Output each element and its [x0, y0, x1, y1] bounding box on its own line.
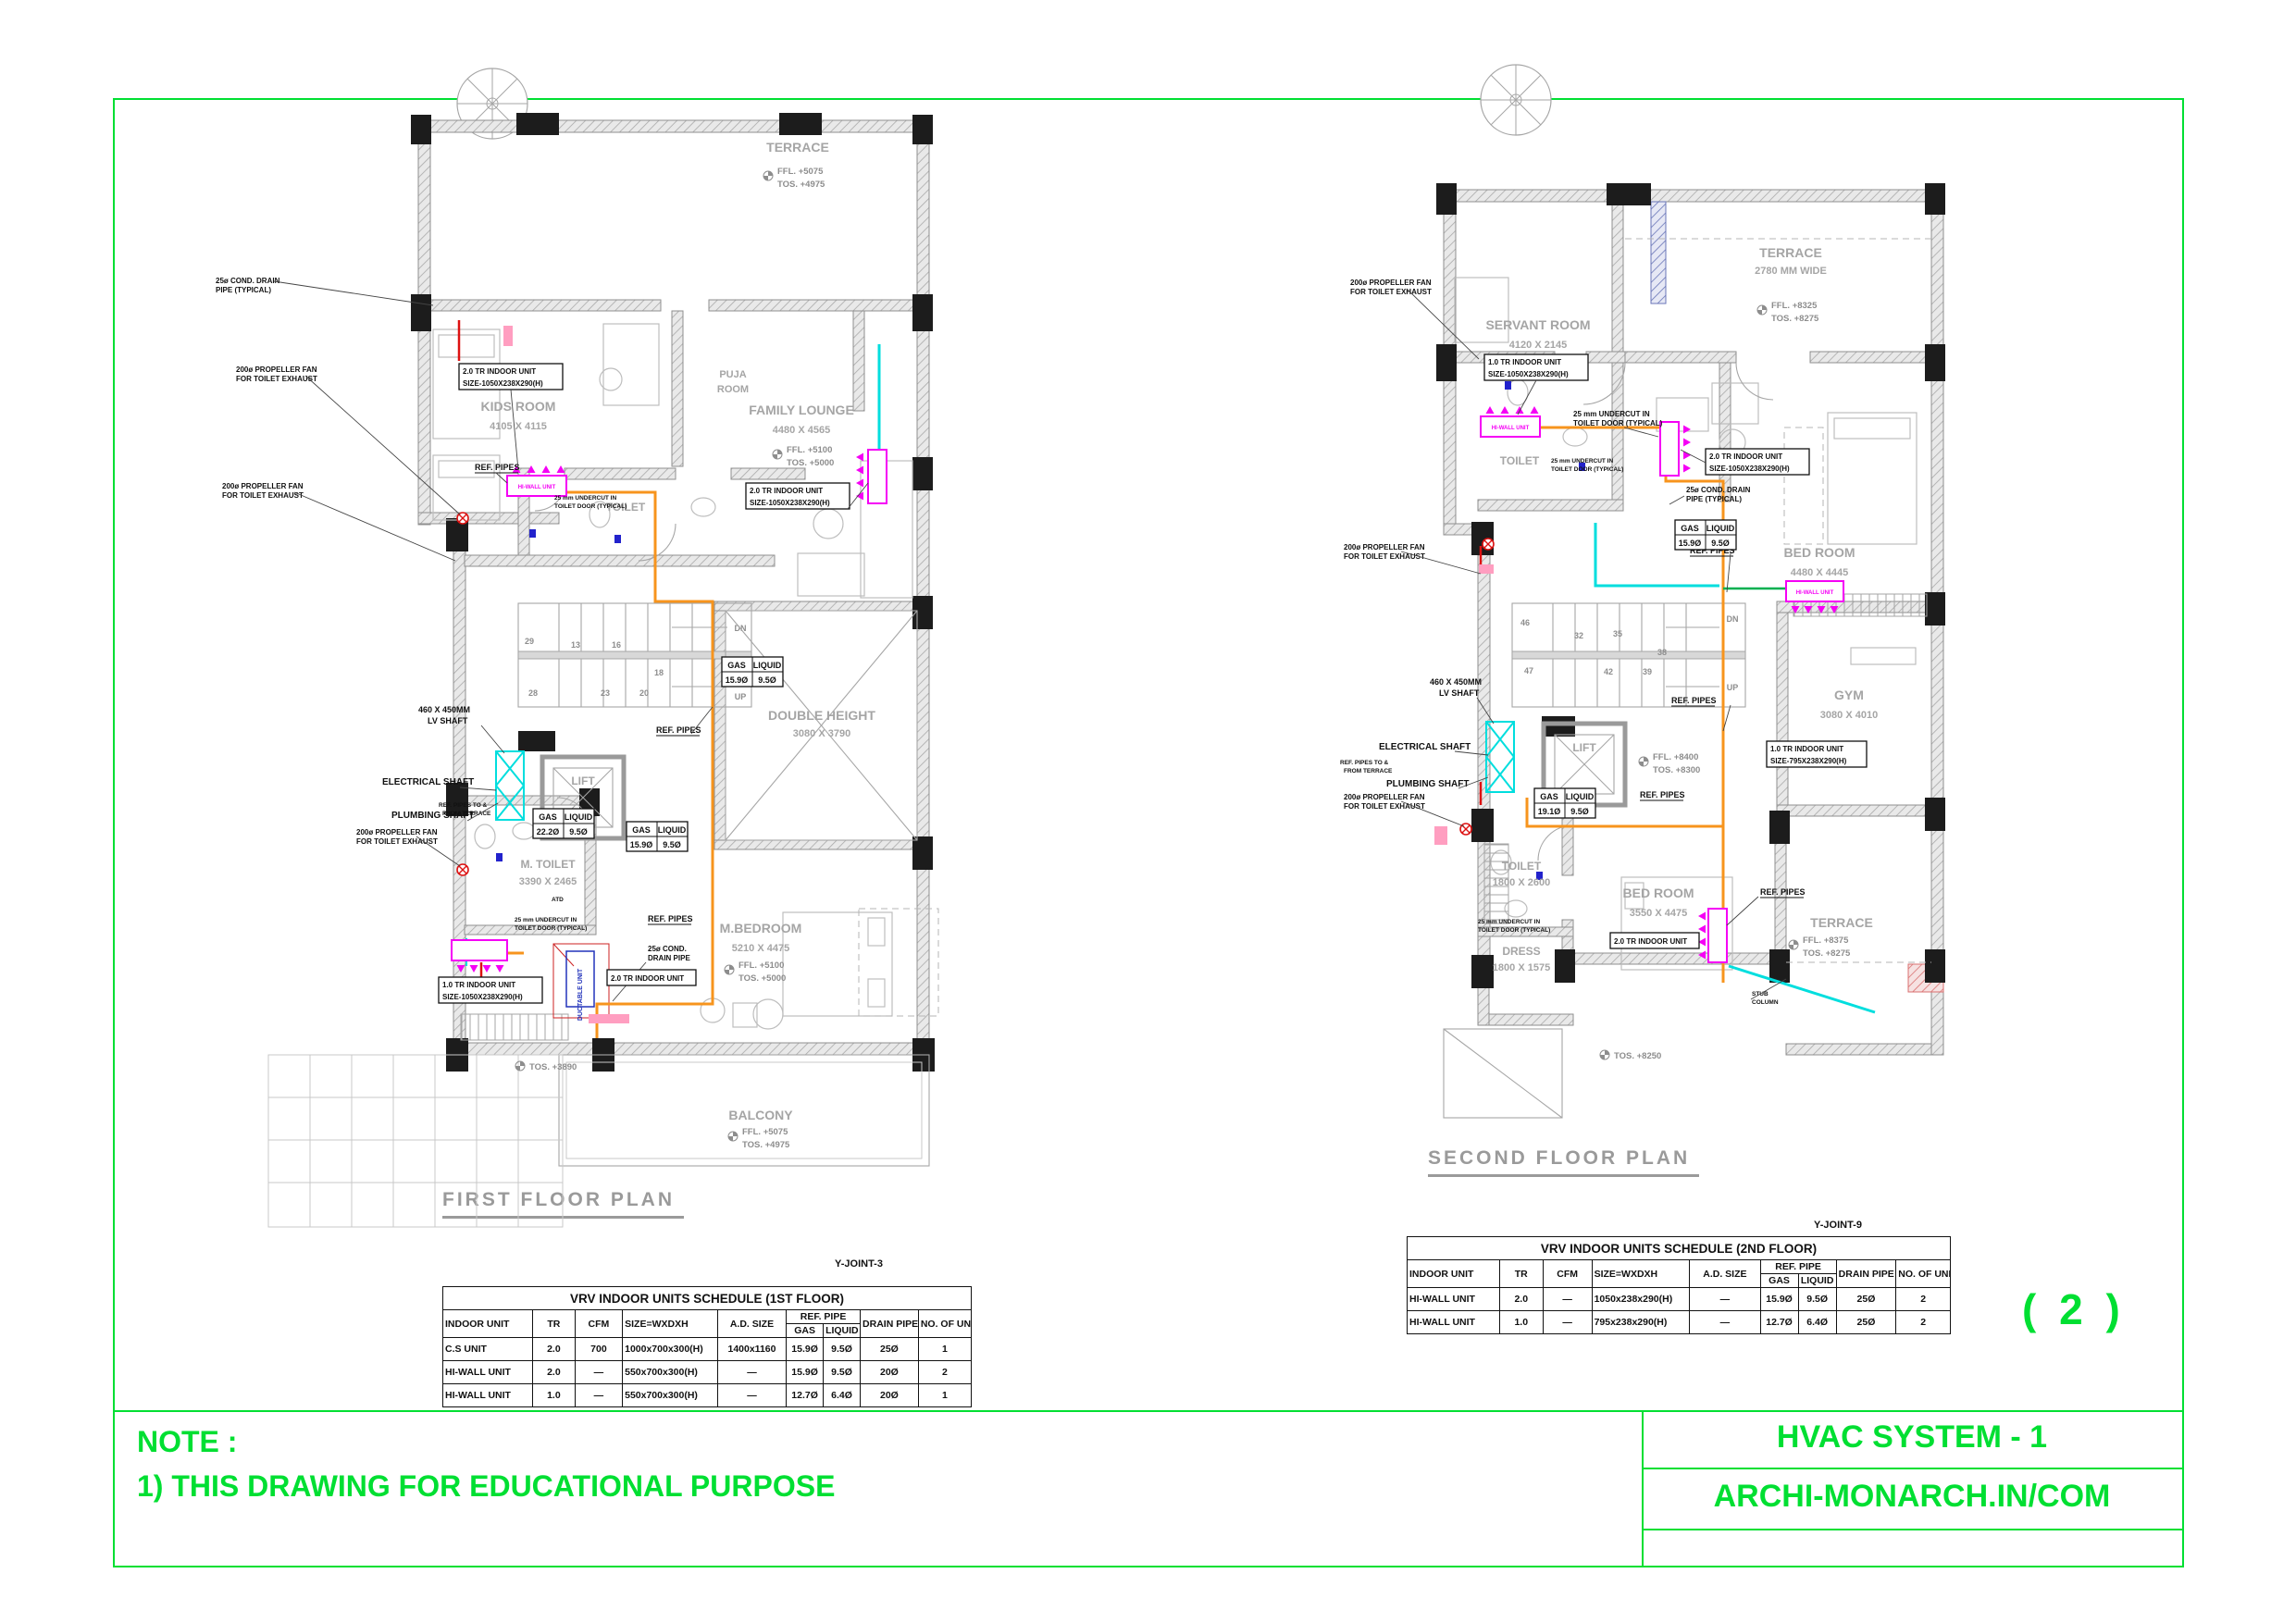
col-ad-size: A.D. SIZE	[1690, 1260, 1760, 1288]
svg-text:23: 23	[601, 688, 610, 698]
sf-stair-dn: DN	[1727, 614, 1739, 624]
svg-text:ROOM: ROOM	[717, 384, 749, 395]
svg-text:25 mm UNDERCUT IN: 25 mm UNDERCUT IN	[1573, 410, 1650, 418]
ff-hiwall-unit-mtoilet	[452, 940, 507, 973]
table-row: HI-WALL UNIT1.0 —550x700x300(H) —12.7Ø 6…	[443, 1384, 972, 1407]
svg-text:TOILET: TOILET	[1500, 454, 1540, 467]
svg-text:DUCTABLE UNIT: DUCTABLE UNIT	[577, 968, 584, 1021]
table-row: HI-WALL UNIT1.0 —795x238x290(H) —12.7Ø 6…	[1408, 1311, 1951, 1334]
svg-text:20: 20	[639, 688, 649, 698]
svg-text:TOILET DOOR (TYPICAL): TOILET DOOR (TYPICAL)	[515, 925, 587, 932]
svg-text:LIQUID: LIQUID	[658, 825, 687, 835]
svg-text:25 mm UNDERCUT IN: 25 mm UNDERCUT IN	[554, 495, 616, 502]
col-no-of-unit: NO. OF UNIT	[1896, 1260, 1951, 1288]
svg-text:LIQUID: LIQUID	[753, 661, 782, 670]
toilet-exhaust-fan-icon	[457, 513, 468, 524]
svg-text:35: 35	[1613, 629, 1622, 638]
svg-text:2.0 TR INDOOR UNIT: 2.0 TR INDOOR UNIT	[1614, 937, 1687, 946]
svg-text:GYM: GYM	[1834, 688, 1864, 702]
svg-text:HI-WALL UNIT: HI-WALL UNIT	[1492, 426, 1530, 431]
svg-text:200ø PROPELLER FAN: 200ø PROPELLER FAN	[222, 482, 304, 490]
plans-canvas: 29 13 16 18 28 23 20 DN UP DOUBLE HEIGHT…	[0, 0, 2296, 1623]
svg-text:9.5Ø: 9.5Ø	[569, 827, 588, 836]
svg-text:BALCONY: BALCONY	[728, 1108, 793, 1122]
svg-text:22.2Ø: 22.2Ø	[537, 827, 560, 836]
svg-text:1.0 TR INDOOR UNIT: 1.0 TR INDOOR UNIT	[442, 981, 515, 989]
svg-text:COLUMN: COLUMN	[1752, 999, 1779, 1006]
svg-text:DOUBLE HEIGHT: DOUBLE HEIGHT	[768, 708, 875, 723]
drawing-sheet: NOTE : 1) THIS DRAWING FOR EDUCATIONAL P…	[0, 0, 2296, 1623]
svg-text:TOS. +5000: TOS. +5000	[787, 458, 834, 468]
svg-text:FOR TOILET EXHAUST: FOR TOILET EXHAUST	[1344, 552, 1425, 561]
svg-text:4480 X 4565: 4480 X 4565	[773, 425, 830, 436]
svg-text:REF. PIPES: REF. PIPES	[1640, 790, 1685, 799]
sf-hiwall-unit-bedroom1	[1660, 422, 1691, 476]
svg-text:DRESS: DRESS	[1502, 945, 1540, 958]
svg-text:1800 X 1575: 1800 X 1575	[1493, 962, 1550, 973]
col-gas: GAS	[787, 1324, 824, 1338]
sf-steel-pier	[1651, 202, 1666, 304]
svg-text:TOILET DOOR (TYPICAL): TOILET DOOR (TYPICAL)	[554, 503, 627, 510]
svg-text:TOS. +8250: TOS. +8250	[1614, 1051, 1661, 1061]
svg-text:BED ROOM: BED ROOM	[1784, 545, 1855, 560]
svg-text:FAMILY LOUNGE: FAMILY LOUNGE	[749, 403, 854, 417]
svg-text:25ø COND.: 25ø COND.	[648, 945, 687, 953]
svg-text:3080 X 3790: 3080 X 3790	[793, 728, 850, 739]
svg-text:FOR TOILET EXHAUST: FOR TOILET EXHAUST	[222, 491, 304, 500]
svg-text:GAS: GAS	[539, 812, 557, 822]
col-tr: TR	[1499, 1260, 1543, 1288]
ff-ductable-unit: DUCTABLE UNIT	[553, 944, 609, 1021]
svg-text:TOS. +8275: TOS. +8275	[1803, 948, 1851, 959]
svg-text:TERRACE: TERRACE	[1810, 915, 1873, 930]
svg-text:1.0 TR INDOOR UNIT: 1.0 TR INDOOR UNIT	[1488, 358, 1561, 366]
svg-text:42: 42	[1604, 667, 1613, 676]
svg-text:200ø PROPELLER FAN: 200ø PROPELLER FAN	[1344, 543, 1425, 551]
svg-text:PLUMBING SHAFT: PLUMBING SHAFT	[1386, 779, 1469, 789]
svg-text:TOS. +4975: TOS. +4975	[742, 1140, 790, 1150]
svg-text:LIQUID: LIQUID	[1566, 792, 1595, 801]
svg-text:REF. PIPES: REF. PIPES	[1760, 887, 1806, 897]
svg-text:DRAIN PIPE: DRAIN PIPE	[648, 954, 690, 962]
svg-text:TOILET: TOILET	[1502, 860, 1542, 873]
svg-text:REF. PIPES: REF. PIPES	[648, 914, 693, 923]
svg-text:2.0 TR INDOOR UNIT: 2.0 TR INDOOR UNIT	[611, 974, 684, 983]
svg-text:4120 X 2145: 4120 X 2145	[1509, 340, 1567, 351]
svg-text:460 X 450MM: 460 X 450MM	[418, 705, 470, 714]
sf-gas-liquid-table-1: GASLIQUID 15.9Ø9.5Ø	[1675, 520, 1736, 550]
svg-text:SIZE-795X238X290(H): SIZE-795X238X290(H)	[1770, 757, 1847, 765]
svg-text:TOS. +8275: TOS. +8275	[1771, 314, 1819, 324]
svg-text:TERRACE: TERRACE	[1759, 245, 1822, 260]
svg-text:SERVANT ROOM: SERVANT ROOM	[1485, 317, 1590, 332]
svg-text:3550 X 4475: 3550 X 4475	[1630, 908, 1687, 919]
svg-text:25 mm UNDERCUT IN: 25 mm UNDERCUT IN	[1551, 458, 1613, 465]
svg-text:25ø COND. DRAIN: 25ø COND. DRAIN	[216, 277, 280, 285]
svg-text:M. TOILET: M. TOILET	[520, 858, 576, 871]
sf-hiwall-unit-servant: HI-WALL UNIT	[1481, 406, 1540, 437]
ff-gas-liquid-table-3: GASLIQUID 15.9Ø9.5Ø	[627, 822, 688, 851]
svg-text:47: 47	[1524, 666, 1533, 675]
col-ad-size: A.D. SIZE	[717, 1310, 786, 1338]
svg-text:9.5Ø: 9.5Ø	[1711, 539, 1730, 548]
sf-stairs: 46 32 35 38 47 42 39 DN UP	[1512, 603, 1745, 707]
svg-text:29: 29	[525, 637, 534, 646]
svg-text:M.BEDROOM: M.BEDROOM	[720, 921, 802, 935]
svg-text:9.5Ø: 9.5Ø	[1570, 807, 1589, 816]
col-indoor-unit: INDOOR UNIT	[443, 1310, 533, 1338]
col-cfm: CFM	[575, 1310, 622, 1338]
svg-text:19.1Ø: 19.1Ø	[1538, 807, 1561, 816]
svg-text:3080 X 4010: 3080 X 4010	[1820, 710, 1878, 721]
svg-text:LIQUID: LIQUID	[1706, 524, 1735, 533]
sf-stair-up: UP	[1727, 683, 1739, 692]
svg-text:SIZE-1050X238X290(H): SIZE-1050X238X290(H)	[1488, 370, 1569, 378]
svg-text:2.0 TR INDOOR UNIT: 2.0 TR INDOOR UNIT	[463, 367, 536, 376]
svg-text:4105 X 4115: 4105 X 4115	[490, 421, 547, 432]
svg-text:REF. PIPES: REF. PIPES	[475, 463, 520, 472]
svg-text:ATD: ATD	[552, 897, 564, 903]
svg-text:9.5Ø: 9.5Ø	[663, 840, 681, 849]
col-size: SIZE=WXDXH	[623, 1310, 718, 1338]
svg-text:LV SHAFT: LV SHAFT	[1439, 688, 1480, 698]
svg-text:FFL. +8400: FFL. +8400	[1653, 752, 1698, 762]
svg-text:1800 X 2600: 1800 X 2600	[1493, 877, 1550, 888]
col-liquid: LIQUID	[1798, 1274, 1836, 1288]
svg-text:38: 38	[1657, 648, 1667, 657]
col-size: SIZE=WXDXH	[1592, 1260, 1690, 1288]
svg-text:FOR TOILET EXHAUST: FOR TOILET EXHAUST	[356, 837, 438, 846]
svg-text:TERRACE: TERRACE	[766, 140, 829, 155]
svg-text:FFL. +5075: FFL. +5075	[777, 167, 824, 177]
schedule-title: VRV INDOOR UNITS SCHEDULE (1ST FLOOR)	[443, 1287, 972, 1310]
svg-text:SIZE-1050X238X290(H): SIZE-1050X238X290(H)	[750, 499, 830, 507]
svg-text:GAS: GAS	[1681, 524, 1699, 533]
col-tr: TR	[533, 1310, 576, 1338]
svg-text:LIFT: LIFT	[571, 774, 595, 787]
svg-text:46: 46	[1520, 618, 1530, 627]
svg-text:GAS: GAS	[1540, 792, 1558, 801]
sf-hiwall-unit-bedroom2	[1698, 909, 1727, 962]
col-ref-pipe: REF. PIPE	[1760, 1260, 1836, 1274]
toilet-exhaust-fan-icon	[457, 864, 468, 875]
svg-text:GAS: GAS	[727, 661, 746, 670]
svg-text:SIZE-1050X238X290(H): SIZE-1050X238X290(H)	[442, 993, 523, 1001]
table-row: HI-WALL UNIT2.0 —550x700x300(H) —15.9Ø 9…	[443, 1361, 972, 1384]
svg-text:18: 18	[654, 668, 664, 677]
svg-text:HI-WALL UNIT: HI-WALL UNIT	[1796, 590, 1834, 596]
svg-text:39: 39	[1643, 667, 1652, 676]
svg-text:200ø PROPELLER FAN: 200ø PROPELLER FAN	[1344, 793, 1425, 801]
svg-text:15.9Ø: 15.9Ø	[630, 840, 653, 849]
ff-double-height: DOUBLE HEIGHT 3080 X 3790	[726, 611, 917, 840]
svg-text:HI-WALL UNIT: HI-WALL UNIT	[518, 485, 556, 490]
schedule-title: VRV INDOOR UNITS SCHEDULE (2ND FLOOR)	[1408, 1237, 1951, 1260]
svg-text:25ø COND. DRAIN: 25ø COND. DRAIN	[1686, 486, 1751, 494]
vrv-schedule-1st-floor: VRV INDOOR UNITS SCHEDULE (1ST FLOOR) IN…	[442, 1286, 972, 1407]
table-row: C.S UNIT2.0 7001000x700x300(H) 1400x1160…	[443, 1338, 972, 1361]
col-no-of-unit: NO. OF UNIT	[918, 1310, 971, 1338]
col-drain-pipe: DRAIN PIPE	[861, 1310, 919, 1338]
sf-annotations: 200ø PROPELLER FAN FOR TOILET EXHAUST 20…	[1340, 279, 1806, 1006]
svg-text:TOILET DOOR (TYPICAL): TOILET DOOR (TYPICAL)	[1478, 927, 1550, 934]
svg-text:ELECTRICAL SHAFT: ELECTRICAL SHAFT	[382, 777, 474, 787]
col-indoor-unit: INDOOR UNIT	[1408, 1260, 1500, 1288]
svg-text:SIZE-1050X238X290(H): SIZE-1050X238X290(H)	[463, 379, 543, 388]
svg-text:200ø PROPELLER FAN: 200ø PROPELLER FAN	[356, 828, 438, 836]
svg-text:460 X 450MM: 460 X 450MM	[1430, 677, 1482, 687]
svg-text:32: 32	[1574, 631, 1583, 640]
col-gas: GAS	[1760, 1274, 1798, 1288]
svg-text:BED ROOM: BED ROOM	[1623, 886, 1694, 900]
svg-text:16: 16	[612, 640, 621, 650]
svg-text:FFL. +8325: FFL. +8325	[1771, 301, 1818, 311]
svg-text:TOS. +4975: TOS. +4975	[777, 180, 825, 190]
svg-text:2.0 TR INDOOR UNIT: 2.0 TR INDOOR UNIT	[750, 487, 823, 495]
svg-text:4480 X 4445: 4480 X 4445	[1791, 567, 1848, 578]
svg-text:TOS. +5000: TOS. +5000	[738, 973, 786, 984]
svg-text:LIFT: LIFT	[1572, 741, 1596, 754]
ff-stair-up: UP	[735, 692, 747, 701]
svg-text:REF. PIPES TO &: REF. PIPES TO &	[1340, 760, 1389, 766]
first-floor-plan: 29 13 16 18 28 23 20 DN UP DOUBLE HEIGHT…	[216, 68, 938, 1227]
ff-gas-liquid-table-2: GASLIQUID 22.2Ø9.5Ø	[533, 809, 594, 838]
svg-text:25 mm UNDERCUT IN: 25 mm UNDERCUT IN	[515, 917, 577, 923]
svg-text:3390 X 2465: 3390 X 2465	[519, 876, 577, 887]
svg-text:PIPE (TYPICAL): PIPE (TYPICAL)	[1686, 495, 1742, 503]
table-row: HI-WALL UNIT2.0 —1050x238x290(H) —15.9Ø …	[1408, 1288, 1951, 1311]
svg-text:13: 13	[571, 640, 580, 650]
svg-text:2780 MM WIDE: 2780 MM WIDE	[1755, 266, 1827, 277]
svg-text:LIQUID: LIQUID	[565, 812, 593, 822]
svg-text:LV SHAFT: LV SHAFT	[428, 716, 468, 725]
col-drain-pipe: DRAIN PIPE	[1836, 1260, 1896, 1288]
svg-text:REF. PIPES TO &: REF. PIPES TO &	[439, 802, 488, 809]
vrv-schedule-2nd-floor: VRV INDOOR UNITS SCHEDULE (2ND FLOOR) IN…	[1407, 1236, 1951, 1334]
svg-text:SIZE-1050X238X290(H): SIZE-1050X238X290(H)	[1709, 465, 1790, 473]
svg-text:TOS. +3890: TOS. +3890	[529, 1062, 577, 1072]
svg-text:9.5Ø: 9.5Ø	[758, 675, 776, 685]
svg-text:1.0 TR INDOOR UNIT: 1.0 TR INDOOR UNIT	[1770, 745, 1843, 753]
svg-text:15.9Ø: 15.9Ø	[726, 675, 749, 685]
col-ref-pipe: REF. PIPE	[787, 1310, 861, 1324]
svg-text:TOS. +8300: TOS. +8300	[1653, 765, 1700, 775]
svg-text:TOILET DOOR (TYPICAL): TOILET DOOR (TYPICAL)	[1551, 466, 1623, 473]
svg-text:GAS: GAS	[632, 825, 651, 835]
svg-text:TOILET DOOR (TYPICAL): TOILET DOOR (TYPICAL)	[1573, 419, 1663, 427]
svg-text:KIDS ROOM: KIDS ROOM	[481, 399, 556, 414]
svg-text:PIPE (TYPICAL): PIPE (TYPICAL)	[216, 286, 271, 294]
svg-text:PUJA: PUJA	[719, 369, 746, 380]
svg-text:5210 X 4475: 5210 X 4475	[732, 943, 789, 954]
ff-lv-shaft	[496, 751, 524, 820]
svg-text:2.0 TR INDOOR UNIT: 2.0 TR INDOOR UNIT	[1709, 452, 1782, 461]
svg-text:200ø PROPELLER FAN: 200ø PROPELLER FAN	[236, 365, 317, 374]
ff-gas-liquid-table-1: GASLIQUID 15.9Ø9.5Ø	[722, 657, 783, 687]
svg-text:FFL. +8375: FFL. +8375	[1803, 935, 1849, 946]
svg-text:FROM TERRACE: FROM TERRACE	[1344, 768, 1393, 774]
svg-text:REF. PIPES: REF. PIPES	[1671, 696, 1717, 705]
svg-text:FFL. +5100: FFL. +5100	[787, 445, 832, 455]
svg-text:ELECTRICAL SHAFT: ELECTRICAL SHAFT	[1379, 742, 1471, 752]
ff-pergola-grid	[268, 1055, 563, 1227]
svg-text:FFL. +5100: FFL. +5100	[738, 960, 784, 971]
svg-text:28: 28	[528, 688, 538, 698]
col-liquid: LIQUID	[824, 1324, 861, 1338]
svg-text:FOR TOILET EXHAUST: FOR TOILET EXHAUST	[1350, 288, 1432, 296]
spiral-stair-icon	[1481, 65, 1551, 135]
svg-text:FFL. +5075: FFL. +5075	[742, 1127, 788, 1137]
sf-gas-liquid-table-2: GASLIQUID 19.1Ø9.5Ø	[1534, 788, 1595, 818]
svg-text:15.9Ø: 15.9Ø	[1679, 539, 1702, 548]
second-floor-plan: 46 32 35 38 47 42 39 DN UP LIFT	[1340, 65, 1945, 1118]
svg-text:200ø PROPELLER FAN: 200ø PROPELLER FAN	[1350, 279, 1432, 287]
col-cfm: CFM	[1543, 1260, 1592, 1288]
toilet-exhaust-fan-icon	[1483, 539, 1494, 550]
svg-text:25 mm UNDERCUT IN: 25 mm UNDERCUT IN	[1478, 919, 1540, 925]
